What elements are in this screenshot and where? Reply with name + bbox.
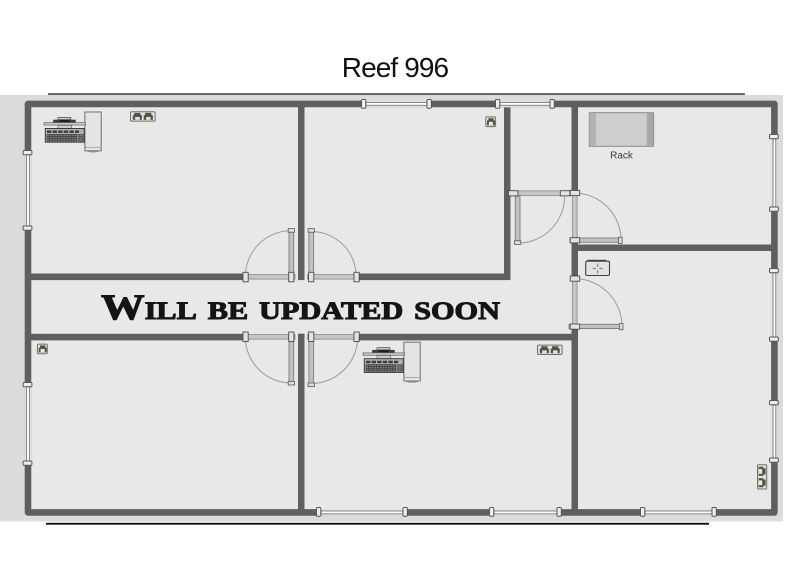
svg-text:Will be updated soon: Will be updated soon	[101, 287, 500, 327]
svg-text:Reef 996: Reef 996	[342, 52, 449, 83]
svg-text:Rack: Rack	[610, 151, 634, 162]
